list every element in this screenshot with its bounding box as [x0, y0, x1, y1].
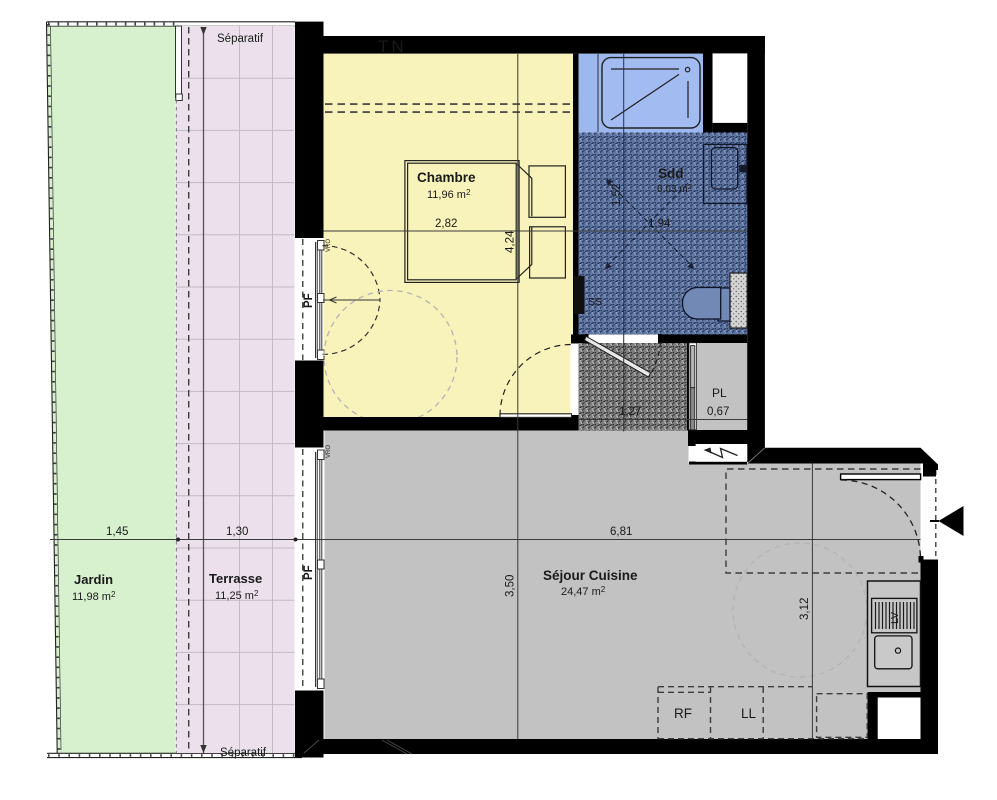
- svg-text:Séparatif: Séparatif: [220, 747, 267, 759]
- svg-text:TN: TN: [378, 37, 407, 56]
- svg-text:Séparatif: Séparatif: [217, 33, 264, 45]
- svg-text:Chambre: Chambre: [417, 170, 476, 185]
- svg-text:PF: PF: [303, 565, 315, 580]
- svg-text:1,30: 1,30: [226, 526, 248, 538]
- svg-text:VRO: VRO: [326, 445, 332, 458]
- svg-text:PL: PL: [712, 386, 727, 400]
- svg-text:LL: LL: [741, 706, 757, 721]
- svg-text:PF: PF: [303, 293, 315, 308]
- svg-text:1,27: 1,27: [619, 406, 641, 418]
- svg-text:Sdd: Sdd: [658, 166, 684, 181]
- svg-text:6,81: 6,81: [610, 526, 632, 538]
- svg-text:1,52: 1,52: [611, 184, 623, 206]
- svg-text:Jardin: Jardin: [74, 572, 113, 587]
- svg-text:11,96 m2: 11,96 m2: [427, 188, 471, 201]
- svg-text:SS: SS: [588, 296, 602, 308]
- svg-text:2,82: 2,82: [435, 218, 457, 230]
- svg-text:1,45: 1,45: [106, 526, 128, 538]
- svg-text:1,94: 1,94: [648, 218, 671, 230]
- svg-text:24,47 m2: 24,47 m2: [561, 585, 606, 598]
- svg-text:11,98 m2: 11,98 m2: [72, 590, 116, 603]
- svg-text:11,25 m2: 11,25 m2: [215, 589, 259, 602]
- svg-text:3,50: 3,50: [505, 575, 517, 597]
- svg-text:RF: RF: [674, 706, 692, 721]
- svg-text:Terrasse: Terrasse: [209, 571, 262, 586]
- svg-text:LV: LV: [889, 612, 901, 624]
- svg-text:0,67: 0,67: [707, 406, 729, 418]
- svg-text:3,12: 3,12: [799, 598, 811, 620]
- svg-text:Séjour Cuisine: Séjour Cuisine: [543, 568, 638, 583]
- svg-text:4,24: 4,24: [505, 230, 517, 253]
